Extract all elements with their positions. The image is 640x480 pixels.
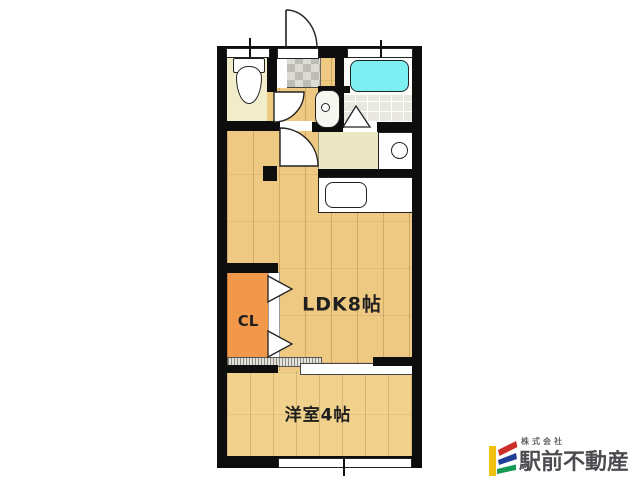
washbasin-drain-icon [321, 103, 330, 112]
wall-right [412, 46, 422, 468]
ldk-label: LDK8帖 [302, 290, 382, 317]
wall-divider-right [373, 357, 422, 366]
window-toilet-tick [249, 38, 251, 57]
wall-left [217, 46, 227, 468]
closet-label: CL [238, 312, 259, 330]
window-toilet [226, 48, 270, 58]
kitchen-sink-icon [325, 182, 367, 208]
company-logo-mark-icon [489, 441, 518, 476]
hall-door-opening [280, 121, 312, 131]
stove-burner-icon [391, 142, 408, 159]
western-room-label: 洋室4帖 [285, 401, 352, 426]
floorplan-canvas: LDK8帖 CL 洋室4帖 株式会社 駅前不動産 [0, 0, 640, 480]
bathtub-icon [350, 60, 409, 92]
window-bottom-tick [343, 456, 345, 476]
closet-door-strip [268, 272, 280, 362]
entrance-threshold [277, 56, 287, 88]
entrance-swing-door-icon [286, 10, 317, 48]
company-name: 駅前不動産 [519, 444, 629, 476]
bathroom-door-opening [343, 122, 377, 132]
wall-toilet-bottom [217, 121, 280, 131]
window-bottom [278, 458, 412, 468]
entrance-opening [277, 48, 319, 59]
genkan-tiles [287, 56, 321, 88]
wall-kitchen-divider [318, 169, 412, 177]
wall-closet-top [217, 263, 278, 273]
pillar [263, 166, 277, 181]
wall-divider-left [217, 365, 278, 373]
wall-mid-right [377, 122, 422, 132]
bathroom-floor [343, 95, 412, 122]
window-bath-tick [380, 40, 382, 57]
